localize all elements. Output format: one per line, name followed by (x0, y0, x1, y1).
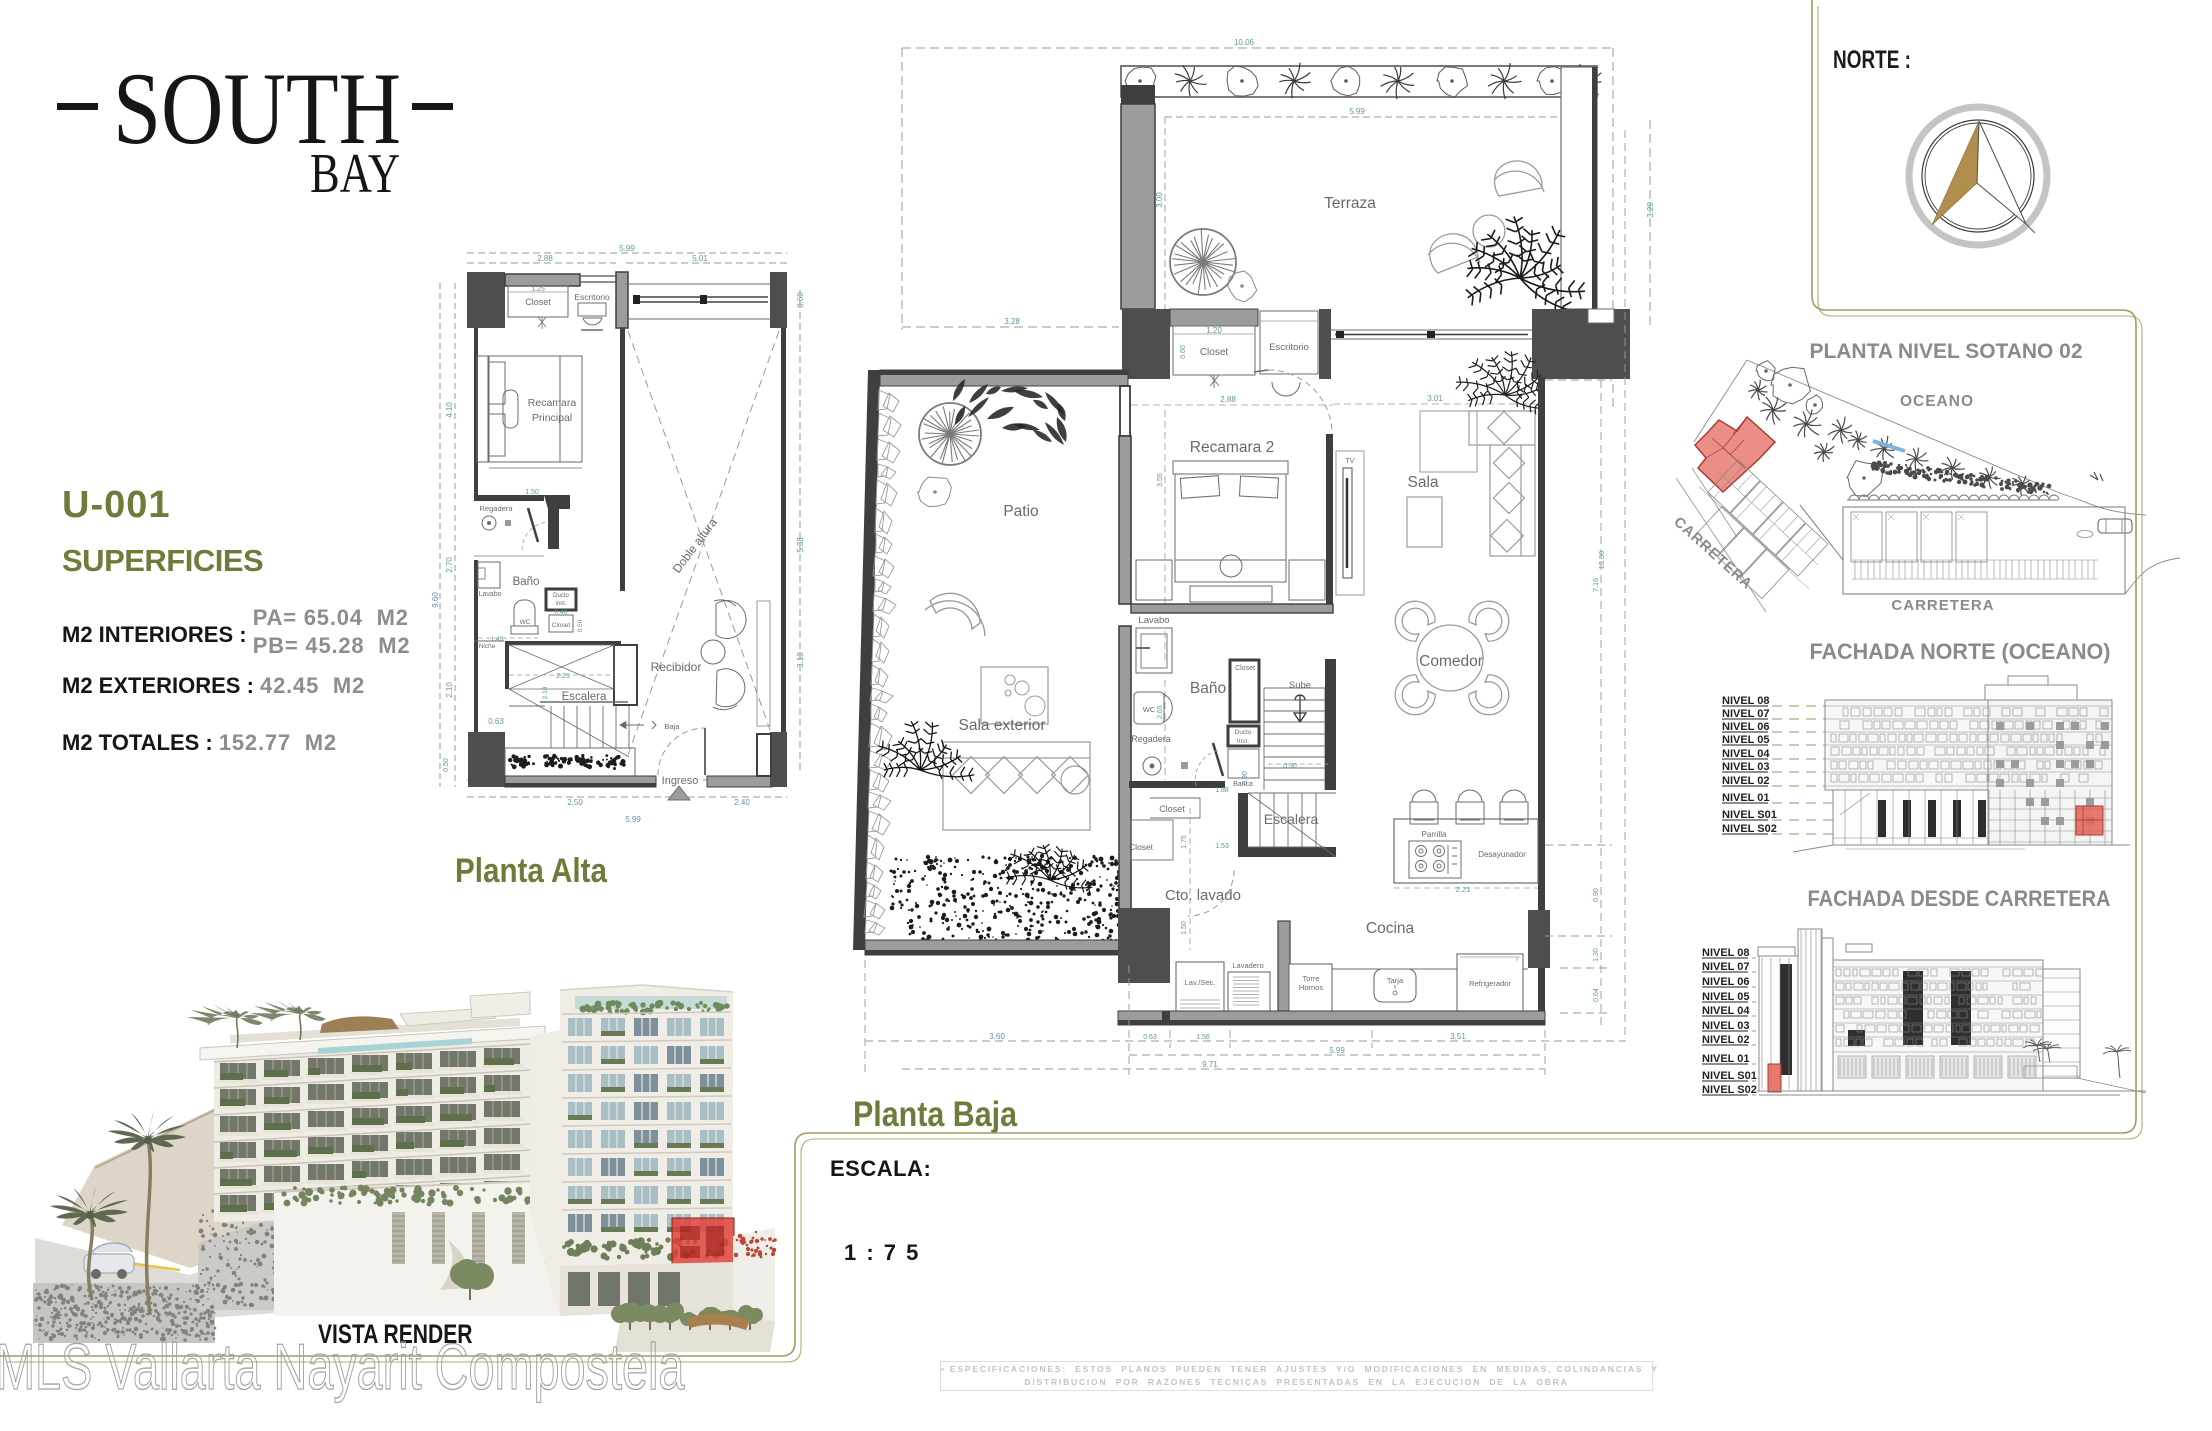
svg-text:0.50: 0.50 (577, 619, 584, 632)
svg-text:9.71: 9.71 (1202, 1060, 1218, 1069)
svg-text:TV: TV (1346, 458, 1355, 465)
svg-text:Recibidor: Recibidor (651, 660, 702, 674)
svg-text:NIVEL S01: NIVEL S01 (1702, 1070, 1757, 1082)
svg-text:0.63: 0.63 (488, 717, 504, 726)
svg-text:NIVEL 01: NIVEL 01 (1702, 1053, 1750, 1065)
svg-text:2.25: 2.25 (556, 673, 570, 680)
svg-text:WC: WC (520, 619, 531, 626)
svg-text:2.10: 2.10 (542, 686, 549, 699)
svg-text:Terraza: Terraza (1324, 195, 1376, 212)
svg-text:13.60: 13.60 (1597, 551, 1606, 570)
svg-text:Closet: Closet (525, 297, 551, 307)
svg-text:2.70: 2.70 (445, 557, 454, 573)
svg-text:Refrigerador: Refrigerador (1469, 979, 1511, 988)
svg-text:NIVEL 06: NIVEL 06 (1702, 976, 1750, 988)
svg-text:3.60: 3.60 (989, 1032, 1005, 1041)
svg-text:Closet: Closet (552, 622, 571, 629)
svg-text:3.55: 3.55 (1157, 473, 1164, 487)
svg-text:Escritorio: Escritorio (1269, 342, 1309, 353)
svg-text:Planta Alta: Planta Alta (455, 852, 608, 890)
svg-text:1.20: 1.20 (1206, 326, 1222, 335)
svg-text:Niche: Niche (479, 643, 496, 650)
svg-text:Baño: Baño (513, 576, 540, 588)
svg-text:5.99: 5.99 (1349, 107, 1365, 116)
svg-text:Principal: Principal (532, 412, 572, 424)
svg-text:Closet: Closet (1159, 804, 1185, 814)
svg-text:NIVEL 04: NIVEL 04 (1702, 1005, 1750, 1017)
svg-text:NIVEL S02: NIVEL S02 (1722, 823, 1777, 835)
svg-text:Baño: Baño (1190, 680, 1226, 697)
svg-text:Torre: Torre (1302, 974, 1319, 983)
svg-text:5.01: 5.01 (692, 254, 708, 263)
svg-text:1.56: 1.56 (1196, 1034, 1210, 1041)
svg-text:Recamara 2: Recamara 2 (1190, 439, 1274, 456)
svg-text:Recamara: Recamara (528, 397, 577, 409)
svg-text:1.75: 1.75 (1181, 835, 1188, 849)
svg-text:NIVEL 07: NIVEL 07 (1722, 708, 1770, 720)
svg-text:0.64: 0.64 (1593, 988, 1600, 1002)
svg-text:Escalera: Escalera (1264, 811, 1319, 827)
svg-text:Inst.: Inst. (1237, 738, 1249, 745)
svg-text:NIVEL 08: NIVEL 08 (1702, 947, 1750, 959)
svg-text:NIVEL S01: NIVEL S01 (1722, 809, 1777, 821)
svg-text:Lavabo: Lavabo (1138, 615, 1169, 626)
svg-text:2.40: 2.40 (734, 798, 750, 807)
svg-text:5.99: 5.99 (1329, 1046, 1345, 1055)
svg-text:Sala exterior: Sala exterior (958, 717, 1045, 734)
svg-text:1.53: 1.53 (1215, 843, 1229, 850)
svg-text:0.63: 0.63 (1143, 1034, 1157, 1041)
svg-text:Parrilla: Parrilla (1422, 830, 1447, 839)
svg-text:Ducto: Ducto (553, 593, 569, 599)
svg-text:1.50: 1.50 (1181, 921, 1188, 935)
svg-text:3.51: 3.51 (1450, 1032, 1466, 1041)
svg-text:Sube: Sube (1289, 680, 1311, 691)
svg-text:NIVEL S02: NIVEL S02 (1702, 1084, 1757, 1096)
svg-text:CARRETERA: CARRETERA (1891, 597, 1994, 614)
svg-text:3.29: 3.29 (1646, 202, 1655, 218)
svg-text:Tarja: Tarja (1387, 976, 1404, 985)
svg-text:1.88: 1.88 (1215, 787, 1229, 794)
svg-text:Baja: Baja (664, 722, 680, 731)
svg-text:NIVEL 05: NIVEL 05 (1702, 991, 1750, 1003)
svg-text:Ingreso: Ingreso (662, 775, 699, 787)
svg-text:inst.: inst. (555, 601, 566, 607)
svg-text:Regadera: Regadera (1131, 734, 1171, 744)
svg-text:10.06: 10.06 (1234, 38, 1255, 47)
svg-text:2.10: 2.10 (445, 682, 454, 698)
svg-text:3.10: 3.10 (796, 652, 805, 668)
svg-text:2.65: 2.65 (1157, 705, 1164, 719)
svg-text:NIVEL 02: NIVEL 02 (1722, 775, 1770, 787)
svg-text:Lavadero: Lavadero (1232, 961, 1263, 970)
svg-text:NIVEL 01: NIVEL 01 (1722, 792, 1770, 804)
svg-text:NIVEL 03: NIVEL 03 (1702, 1020, 1750, 1032)
svg-text:Cocina: Cocina (1366, 920, 1415, 937)
svg-text:3.28: 3.28 (1004, 317, 1020, 326)
svg-text:FACHADA NORTE (OCEANO): FACHADA NORTE (OCEANO) (1810, 639, 2111, 664)
svg-text:NIVEL 07: NIVEL 07 (1702, 961, 1750, 973)
svg-text:3.00: 3.00 (1155, 192, 1164, 208)
svg-text:Banca: Banca (1233, 781, 1253, 788)
svg-text:Lavabo: Lavabo (479, 591, 502, 598)
svg-text:Closet: Closet (1200, 347, 1229, 358)
svg-text:2.88: 2.88 (1220, 395, 1236, 404)
svg-text:3.01: 3.01 (1427, 394, 1443, 403)
svg-text:Escalera: Escalera (562, 691, 607, 703)
svg-text:2.50: 2.50 (567, 798, 583, 807)
svg-text:WC: WC (1143, 705, 1156, 714)
svg-text:NIVEL 08: NIVEL 08 (1722, 695, 1770, 707)
svg-text:PLANTA NIVEL SOTANO 02: PLANTA NIVEL SOTANO 02 (1810, 340, 2083, 363)
svg-text:4.10: 4.10 (445, 402, 454, 418)
svg-text:0.90: 0.90 (1593, 888, 1600, 902)
svg-text:NIVEL 04: NIVEL 04 (1722, 748, 1770, 760)
svg-text:Regadera: Regadera (480, 504, 514, 513)
svg-text:1.30: 1.30 (1593, 948, 1600, 962)
svg-text:FACHADA DESDE CARRETERA: FACHADA DESDE CARRETERA (1808, 886, 2111, 911)
svg-text:0.50: 0.50 (443, 758, 450, 772)
svg-text:NIVEL 03: NIVEL 03 (1722, 761, 1770, 773)
svg-text:Comedor: Comedor (1419, 653, 1483, 670)
svg-text:Closet: Closet (1129, 842, 1154, 852)
svg-text:0.60: 0.60 (1180, 345, 1187, 359)
svg-text:NIVEL 05: NIVEL 05 (1722, 734, 1770, 746)
svg-text:0.40: 0.40 (555, 609, 568, 616)
svg-text:Sala: Sala (1407, 474, 1438, 491)
svg-text:Hornos: Hornos (1299, 983, 1323, 992)
svg-text:2.88: 2.88 (537, 254, 553, 263)
svg-text:7.16: 7.16 (1591, 578, 1600, 593)
svg-text:1.50: 1.50 (525, 489, 539, 496)
svg-text:1.45: 1.45 (491, 636, 504, 643)
svg-text:NIVEL 02: NIVEL 02 (1702, 1034, 1750, 1046)
svg-text:0.60: 0.60 (796, 292, 805, 308)
svg-text:5.99: 5.99 (619, 244, 635, 253)
svg-text:Desayunador: Desayunador (1478, 850, 1526, 859)
svg-text:Ducto: Ducto (1235, 729, 1252, 736)
svg-text:NIVEL 06: NIVEL 06 (1722, 721, 1770, 733)
svg-text:1.25: 1.25 (531, 286, 545, 293)
svg-text:5.99: 5.99 (625, 815, 641, 824)
svg-text:OCEANO: OCEANO (1900, 393, 1974, 410)
svg-text:5.38: 5.38 (796, 537, 805, 553)
svg-text:Planta Baja: Planta Baja (853, 1095, 1017, 1134)
svg-text:Escritorio: Escritorio (574, 292, 610, 302)
svg-text:9.60: 9.60 (431, 592, 440, 608)
svg-text:2.21: 2.21 (1456, 885, 1471, 894)
svg-text:Lav./Sec.: Lav./Sec. (1185, 978, 1216, 987)
svg-text:Closet: Closet (1235, 665, 1255, 672)
svg-text:NORTE :: NORTE : (1833, 46, 1911, 74)
svg-text:Patio: Patio (1003, 503, 1038, 520)
